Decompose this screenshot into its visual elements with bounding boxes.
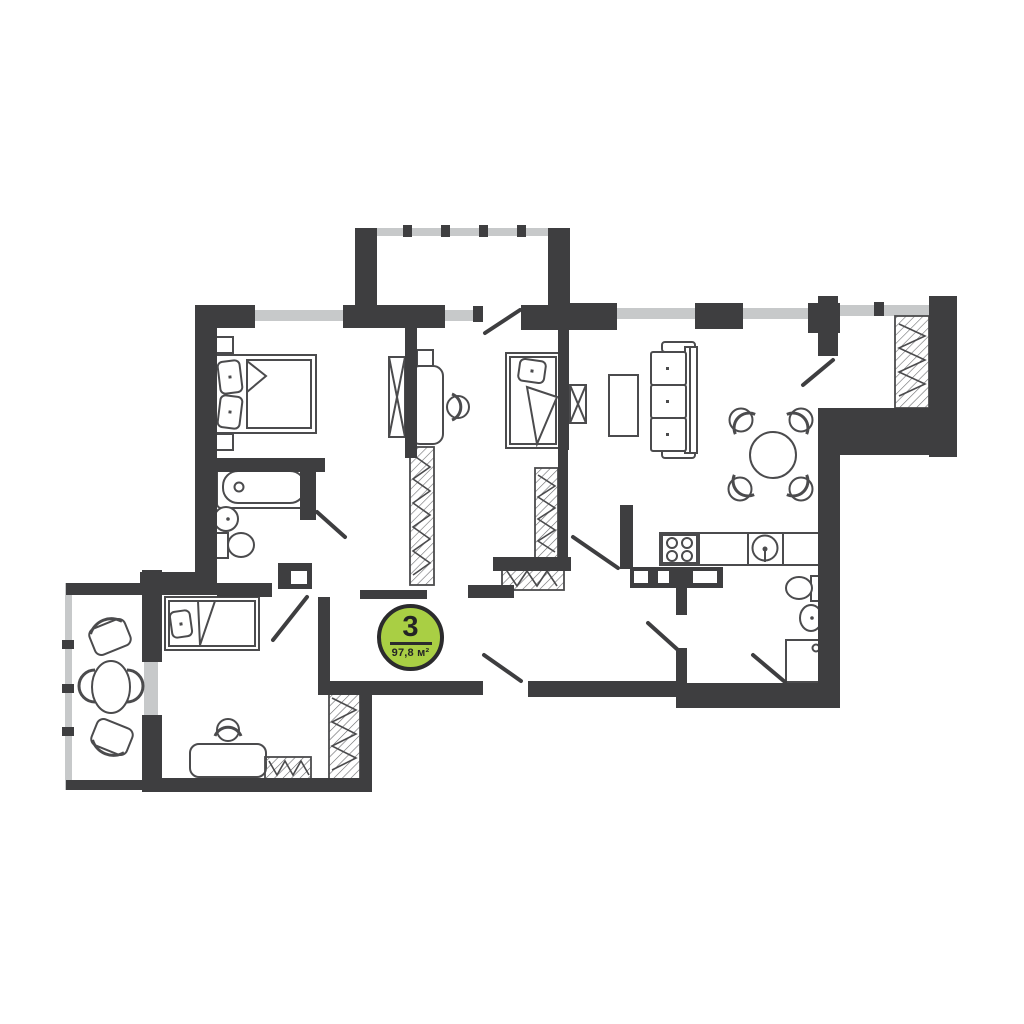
desk-chair (215, 719, 241, 741)
window-bedroom-master (255, 310, 343, 321)
total-area-label: 97,8 м² (392, 647, 430, 659)
door-bedroom-bottom (273, 597, 307, 640)
single-bed (506, 353, 560, 448)
toilet (786, 576, 822, 601)
door-wardrobe-room (803, 360, 833, 385)
glazing-mullion-icon (479, 225, 488, 237)
area-badge: 3 97,8 м² (377, 604, 444, 671)
window-living-1 (617, 308, 695, 319)
door-shower-room (648, 623, 678, 650)
dining-chair (787, 475, 814, 502)
washbasin (214, 507, 238, 531)
mirror-wardrobe (570, 385, 586, 423)
glazing-mullion-icon (403, 225, 412, 237)
desk-chair (447, 394, 469, 420)
mirror-wardrobe (389, 357, 405, 437)
wardrobe (895, 316, 929, 408)
toilet (216, 533, 254, 558)
bathtub (217, 466, 311, 508)
desk (190, 744, 266, 777)
window-living-2 (743, 308, 808, 319)
dining-chair (787, 408, 814, 435)
balcony-left-door (144, 662, 158, 715)
glazing-mullion-icon (62, 684, 74, 693)
wardrobe (265, 757, 311, 779)
window-balcony-door (445, 310, 473, 321)
glazing-mullion-icon (62, 640, 74, 649)
floor-plan-canvas: 3 97,8 м² (0, 0, 1024, 1024)
door-shower-inner (753, 655, 785, 682)
oval-table (92, 661, 130, 713)
dining-chair (728, 475, 755, 502)
wardrobe (410, 447, 434, 585)
sofa (651, 342, 697, 458)
glazing-mullion-icon (441, 225, 450, 237)
door-bathroom (317, 512, 345, 537)
window-mullion-icon (874, 302, 884, 316)
door-balcony-top (485, 310, 520, 333)
glazing-mullion-icon (62, 727, 74, 736)
dining-chair (729, 408, 756, 435)
double-bed (213, 355, 316, 433)
built-in-wardrobe (329, 691, 360, 779)
floor-plan-drawing (0, 0, 1024, 1024)
armchair (88, 717, 135, 761)
badge-divider (390, 642, 432, 645)
walls (66, 228, 957, 792)
wardrobe (535, 468, 558, 560)
rooms-count-label: 3 (402, 615, 418, 640)
round-dining-table (750, 432, 796, 478)
coffee-table (609, 375, 638, 436)
glazing-mullion-icon (517, 225, 526, 237)
door-hall (573, 537, 618, 568)
door-entrance (484, 655, 521, 681)
single-bed (165, 597, 259, 650)
armchair (86, 613, 133, 657)
